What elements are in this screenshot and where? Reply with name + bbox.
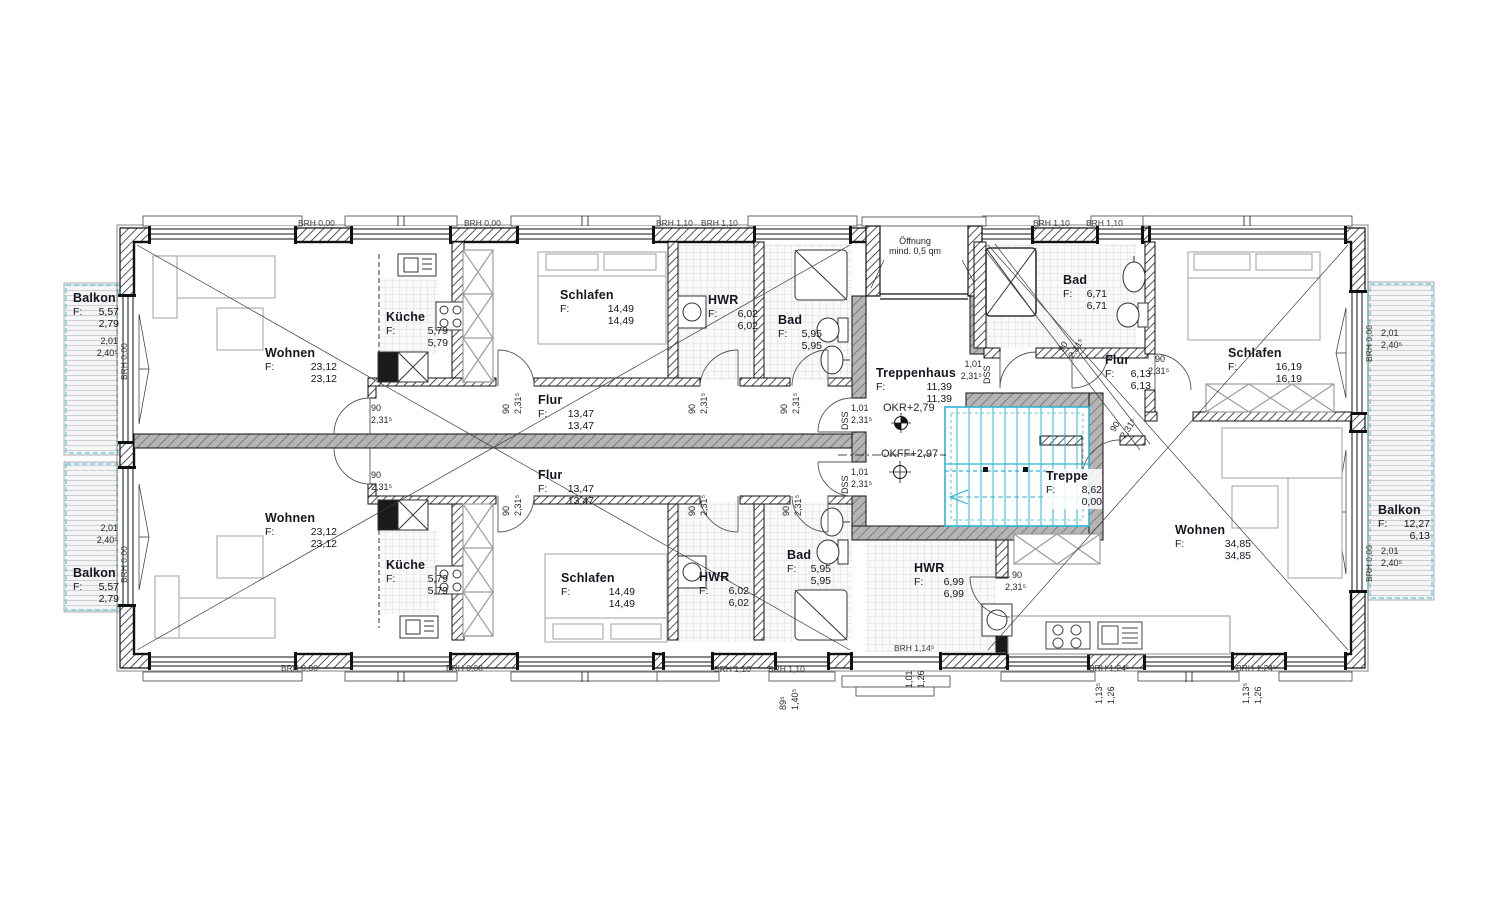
brh-bottom-7: BRH 1,24⁵ (1236, 663, 1276, 673)
door-dim-schlafen-top: 902,31⁵ (501, 393, 524, 414)
window-dim-bottom-3: 1,13⁵1,26 (1094, 683, 1117, 704)
okr-level-label: OKR+2,79 (883, 402, 935, 414)
okr-marker (891, 413, 911, 433)
room-label-schlafen-right: Schlafen F:16,19 16,19 (1228, 346, 1302, 386)
room-label-hwr-top: HWR F:6,02 6,02 (708, 293, 758, 333)
window-dim-bottom-1: 89⁵1,40⁵ (778, 689, 801, 710)
okff-marker (889, 461, 911, 483)
door-dim-flur-bottom: 902,31⁵ (371, 470, 392, 493)
brh-top-4: BRH 1,10 (701, 218, 738, 228)
door-dim-hwr-top: 902,31⁵ (687, 393, 710, 414)
dss-dim-top: 1,012,31⁵ (851, 403, 872, 426)
brh-bottom-1: BRH 0,00 (281, 663, 318, 673)
roof-opening-alcove (862, 214, 986, 302)
room-label-bad-bottom: Bad F:5,95 5,95 (787, 548, 831, 588)
room-label-wohnen-right: Wohnen F:34,85 34,85 (1175, 523, 1251, 563)
room-label-schlafen-top: Schlafen F:14,49 14,49 (560, 288, 634, 328)
balcony-door-dim-right-top: 2,012,40⁵ (1381, 328, 1402, 351)
room-label-flur-top: Flur F:13,47 13,47 (538, 393, 594, 433)
dss-label-right: DSS (982, 365, 994, 384)
door-dim-hwr-bottom: 902,31⁵ (687, 495, 710, 516)
kitchen-right (1008, 616, 1230, 654)
brh-top-1: BRH 0,00 (298, 218, 335, 228)
room-label-balkon-top-left: Balkon F:5,57 2,79 (73, 291, 119, 331)
room-label-bad-top: Bad F:5,95 5,95 (778, 313, 822, 353)
dss-label-bottom: DSS (840, 475, 852, 494)
floor-plan: Balkon F:5,57 2,79 Balkon F:5,57 2,79 Wo… (0, 0, 1500, 900)
room-label-schlafen-bottom: Schlafen F:14,49 14,49 (561, 571, 635, 611)
room-label-bad-right: Bad F:6,71 6,71 (1063, 273, 1107, 313)
door-dim-flur-right: 902,31⁵ (1148, 354, 1169, 377)
door-dim-bad-top: 902,31⁵ (779, 393, 802, 414)
brh-bottom-2: BRH 0,00 (446, 663, 483, 673)
room-label-hwr-bottom: HWR F:6,02 6,02 (699, 570, 749, 610)
floor-plan-svg (0, 0, 1500, 900)
room-label-treppe: Treppe F:8,62 0,00 (1046, 469, 1102, 509)
balcony-door-dim-top-left: 2,012,40⁵ (84, 336, 118, 359)
dss-dim-bottom: 1,012,31⁵ (851, 467, 872, 490)
balcony-door-dim-right-bottom: 2,012,40⁵ (1381, 546, 1402, 569)
opening-note: Öffnung mind. 0,5 qm (884, 236, 946, 256)
room-label-kueche-top: Küche F:5,79 5,79 (386, 310, 448, 350)
okff-level-label: OKFF+2,97 (881, 448, 938, 460)
dss-dim-right: 1,012,31⁵ (952, 359, 982, 382)
room-label-treppenhaus: Treppenhaus F:11,39 11,39 (876, 366, 952, 406)
balcony-door-dim-bottom-left: 2,012,40⁵ (84, 523, 118, 546)
brh-top-3: BRH 1,10 (656, 218, 693, 228)
room-label-flur-bottom: Flur F:13,47 13,47 (538, 468, 594, 508)
brh-bottom-4: BRH 1,10 (768, 664, 805, 674)
room-label-wohnen-bottom-left: Wohnen F:23,12 23,12 (265, 511, 337, 551)
room-label-wohnen-top-left: Wohnen F:23,12 23,12 (265, 346, 337, 386)
dss-label-top: DSS (840, 411, 852, 430)
brh-right-top: BRH 0,00 (1364, 325, 1374, 362)
brh-bottom-6: BRH 1,24⁵ (1089, 663, 1129, 673)
window-dim-bottom-4: 1,13⁵1,26 (1241, 683, 1264, 704)
brh-bottom-3: BRH 1,10 (714, 664, 751, 674)
room-label-hwr-right: HWR F:6,99 6,99 (914, 561, 964, 601)
window-dim-bottom-2: 1,011,26 (904, 670, 927, 688)
door-dim-schlafen-bottom: 902,31⁵ (501, 495, 524, 516)
brh-top-2: BRH 0,00 (464, 218, 501, 228)
door-dim-flur-top: 902,31⁵ (371, 403, 392, 426)
brh-bottom-5: BRH 1,14⁵ (894, 643, 934, 653)
door-dim-kitchen-right: 902,31⁵ (1005, 570, 1026, 593)
room-label-balkon-bottom-left: Balkon F:5,57 2,79 (73, 566, 119, 606)
door-dim-bad-bottom: 902,31⁵ (781, 495, 804, 516)
brh-left-top: BRH 0,00 (119, 343, 129, 380)
room-label-kueche-bottom: Küche F:5,79 5,79 (386, 558, 448, 598)
brh-right-bottom: BRH 0,00 (1364, 545, 1374, 582)
room-label-flur-right: Flur F:6,13 6,13 (1105, 353, 1151, 393)
brh-top-5: BRH 1,10 (1033, 218, 1070, 228)
room-label-balkon-right: Balkon F:12,27 6,13 (1378, 503, 1430, 543)
brh-top-6: BRH 1,10 (1086, 218, 1123, 228)
brh-left-bottom: BRH 0,00 (119, 546, 129, 583)
